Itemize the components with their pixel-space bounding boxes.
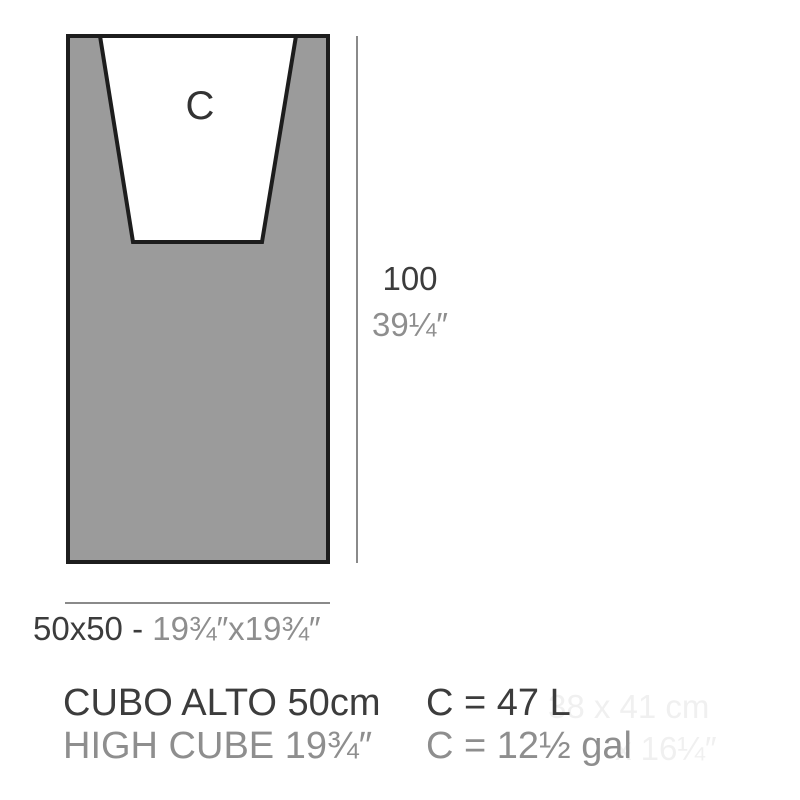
capacity-gallons: C = 12½ gal <box>426 725 632 768</box>
product-name-block: CUBO ALTO 50cm HIGH CUBE 19¾″ <box>63 682 380 768</box>
height-dimension: 100 39¼″ <box>358 256 462 348</box>
cavity-label: C <box>176 84 224 129</box>
base-inches-value: 19¾″x19¾″ <box>152 610 320 647</box>
base-cm-value: 50x50 - <box>33 610 152 647</box>
planter-cavity-shape <box>100 36 296 242</box>
spec-sheet: C 100 39¼″ 50x50 - 19¾″x19¾″ 38 x 41 cm … <box>0 0 800 800</box>
planter-diagram <box>0 0 800 800</box>
capacity-block: C = 47 L C = 12½ gal <box>426 682 632 768</box>
product-name-imperial: HIGH CUBE 19¾″ <box>63 725 380 768</box>
height-cm-value: 100 <box>358 256 462 302</box>
product-name-metric: CUBO ALTO 50cm <box>63 682 380 725</box>
capacity-liters: C = 47 L <box>426 682 632 725</box>
height-inches-value: 39¼″ <box>358 302 462 348</box>
base-dimension: 50x50 - 19¾″x19¾″ <box>33 610 321 648</box>
